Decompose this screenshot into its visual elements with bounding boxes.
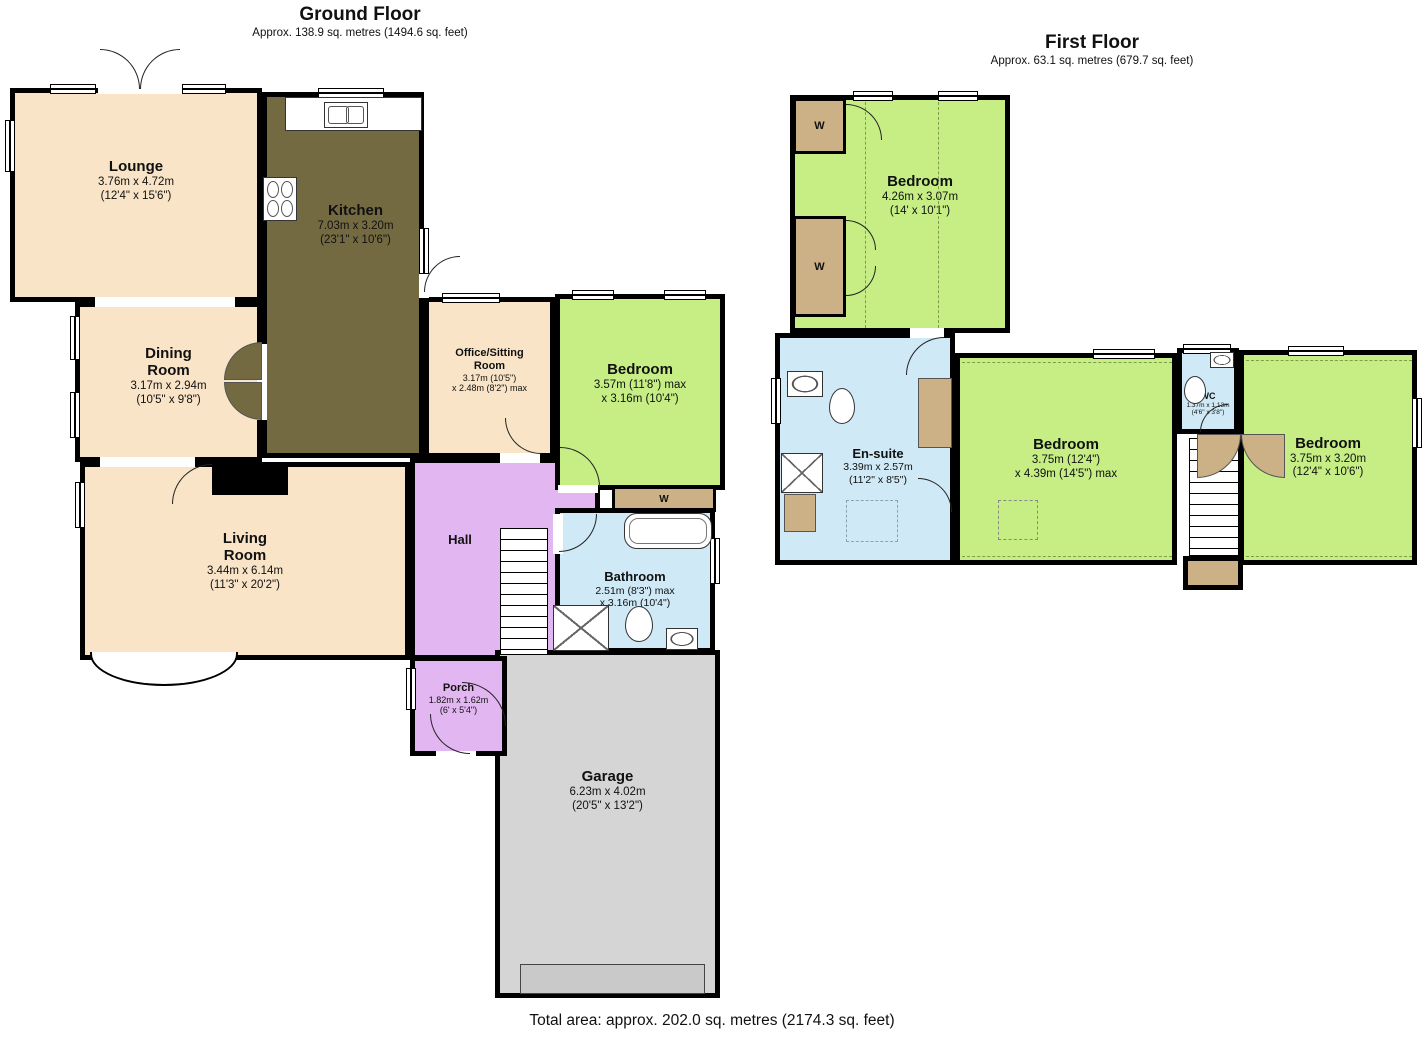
room-name: Garage <box>582 768 634 786</box>
room-lounge: Lounge 3.76m x 4.72m (12'4" x 15'6") <box>10 88 262 302</box>
kitchen-sink-icon <box>324 102 368 128</box>
toilet-icon <box>625 606 653 642</box>
room-dims-imperial: x 4.39m (14'5") max <box>1015 468 1117 482</box>
room-dims-imperial: (23'1" x 10'6") <box>320 234 391 248</box>
sink-icon <box>666 628 698 650</box>
window <box>938 91 978 101</box>
toilet-icon <box>1184 376 1206 404</box>
room-name: Room <box>224 547 267 565</box>
sink-icon <box>1210 352 1234 368</box>
chimney-breast <box>212 467 288 495</box>
shower-icon <box>553 605 609 651</box>
hob-burner <box>267 200 279 217</box>
room-name: Lounge <box>109 158 163 176</box>
room-dims-imperial: x 2.48m (8'2") max <box>452 383 527 394</box>
room-dims-metric: 3.57m (11'8") max <box>594 379 686 393</box>
room-dims-metric: 4.26m x 3.07m <box>882 191 958 205</box>
window <box>1288 346 1344 356</box>
ground-floor-subtitle: Approx. 138.9 sq. metres (1494.6 sq. fee… <box>160 27 560 39</box>
room-garage: Garage 6.23m x 4.02m (20'5" x 13'2") <box>495 650 720 998</box>
door-swing <box>140 49 180 89</box>
first-floor-title: First Floor <box>892 32 1292 55</box>
window <box>853 91 893 101</box>
window <box>442 293 500 303</box>
room-dims-metric: 3.44m x 6.14m <box>207 565 283 579</box>
room-name: Bedroom <box>1033 436 1099 454</box>
room-name: Dining <box>145 345 192 363</box>
window <box>75 482 85 528</box>
bath-icon <box>624 513 712 549</box>
wardrobe-label: W <box>659 494 668 505</box>
bay-window <box>90 652 238 686</box>
room-name: Hall <box>448 532 472 547</box>
first-floor-subtitle: Approx. 63.1 sq. metres (679.7 sq. feet) <box>892 55 1292 67</box>
window <box>572 290 614 300</box>
room-dims-imperial: x 3.16m (10'4") <box>601 393 678 407</box>
ceiling-line <box>962 556 1172 557</box>
first-floor-title-block: First Floor Approx. 63.1 sq. metres (679… <box>892 32 1292 67</box>
wardrobe-label: W <box>814 261 824 273</box>
staircase <box>500 528 548 655</box>
kitchen-counter <box>285 97 422 131</box>
room-name: Office/Sitting <box>455 347 523 360</box>
room-dims-metric: 3.17m (10'5") <box>463 373 516 384</box>
room-dims-imperial: (11'2" x 8'5") <box>849 474 907 487</box>
room-dims-imperial: (12'4" x 10'6") <box>1293 466 1364 480</box>
airing-cupboard <box>784 494 816 532</box>
room-dims-imperial: (12'4" x 15'6") <box>101 190 172 204</box>
room-dims-imperial: (20'5" x 13'2") <box>572 800 643 814</box>
room-dims-metric: 3.75m x 3.20m <box>1290 453 1366 467</box>
ceiling-line <box>938 102 939 328</box>
window <box>5 120 15 172</box>
window <box>182 84 226 94</box>
wardrobe-label: W <box>814 120 824 132</box>
room-dims-metric: 3.76m x 4.72m <box>98 176 174 190</box>
hob-burner <box>281 200 293 217</box>
room-name: En-suite <box>852 446 903 461</box>
hob-burner <box>281 181 293 198</box>
sink-drainer <box>346 106 364 124</box>
room-dims-metric: 2.51m (8'3") max <box>595 585 674 598</box>
ceiling-line <box>1246 556 1412 557</box>
wardrobe: W <box>793 98 846 154</box>
room-dims-imperial: (10'5" x 9'8") <box>136 394 200 408</box>
hob-burner <box>267 181 279 198</box>
window <box>50 84 96 94</box>
room-dims-imperial: (14' x 10'1") <box>890 205 950 219</box>
ground-floor-title: Ground Floor <box>160 4 560 27</box>
room-name: Room <box>474 360 505 373</box>
room-dims-metric: 3.75m (12'4") <box>1032 454 1100 468</box>
window <box>1093 349 1155 359</box>
room-name: Room <box>147 362 190 380</box>
room-kitchen: Kitchen 7.03m x 3.20m (23'1" x 10'6") <box>262 92 424 458</box>
window <box>1412 398 1422 448</box>
hob-icon <box>263 177 297 221</box>
door-opening <box>436 751 476 761</box>
shower-icon <box>781 453 823 493</box>
window <box>70 392 80 438</box>
room-name: Bedroom <box>1295 435 1361 453</box>
loft-hatch <box>998 500 1038 540</box>
airing-cupboard <box>918 378 952 448</box>
window <box>710 538 720 584</box>
stair-landing <box>1183 556 1243 590</box>
wardrobe: W <box>793 216 846 317</box>
room-name: Bedroom <box>607 361 673 379</box>
room-dims-imperial: (11'3" x 20'2") <box>210 579 280 593</box>
bath-basin <box>629 518 707 544</box>
door-opening <box>500 453 540 463</box>
window <box>664 290 706 300</box>
window <box>419 228 429 274</box>
door-swing <box>424 256 460 292</box>
room-name: Living <box>223 530 267 548</box>
room-dims-metric: 3.39m x 2.57m <box>843 461 912 474</box>
room-bedroom-two: Bedroom 3.75m (12'4") x 4.39m (14'5") ma… <box>955 353 1177 565</box>
ceiling-line <box>962 362 1172 363</box>
garage-door <box>520 964 705 994</box>
loft-hatch <box>846 500 898 542</box>
total-area-text: Total area: approx. 202.0 sq. metres (21… <box>0 1012 1424 1030</box>
open-plan-gap <box>95 297 235 307</box>
room-name: Bathroom <box>604 569 665 584</box>
toilet-icon <box>829 388 855 424</box>
window <box>406 668 416 710</box>
room-dims-metric: 7.03m x 3.20m <box>317 220 393 234</box>
room-dims-metric: 3.17m x 2.94m <box>130 380 206 394</box>
room-name: Kitchen <box>328 202 383 220</box>
room-dims-metric: 6.23m x 4.02m <box>569 786 645 800</box>
room-name: Bedroom <box>887 173 953 191</box>
window <box>70 316 80 360</box>
door-swing <box>100 49 140 89</box>
window <box>771 378 781 424</box>
ceiling-line <box>1246 360 1412 361</box>
ground-floor-title-block: Ground Floor Approx. 138.9 sq. metres (1… <box>160 4 560 39</box>
door-opening <box>100 457 195 467</box>
sink-icon <box>787 371 823 397</box>
